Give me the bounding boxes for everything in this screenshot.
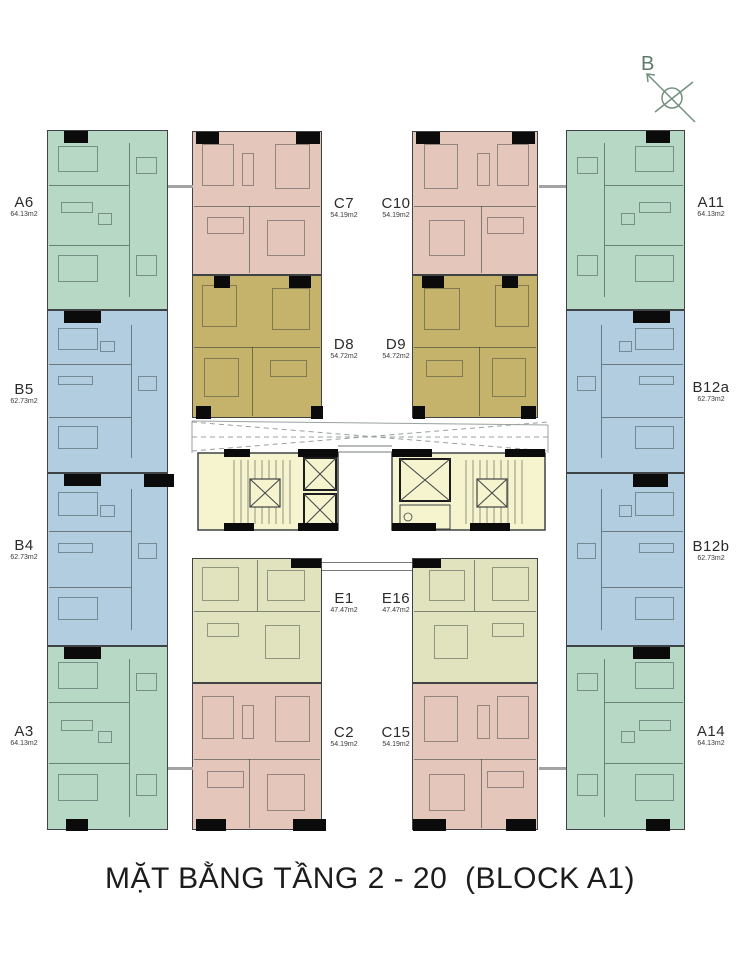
shear-wall bbox=[416, 132, 440, 144]
unit-name: B12b bbox=[688, 539, 734, 554]
unit-E16 bbox=[412, 558, 538, 683]
unit-name: A14 bbox=[688, 724, 734, 739]
unit-name: B12a bbox=[688, 380, 734, 395]
unit-interior bbox=[414, 277, 536, 416]
shear-wall bbox=[196, 132, 219, 144]
unit-name: B5 bbox=[2, 382, 46, 397]
unit-area: 54.19m2 bbox=[324, 211, 364, 220]
unit-label-E1: E147.47m2 bbox=[324, 591, 364, 615]
unit-label-D8: D854.72m2 bbox=[324, 337, 364, 361]
unit-name: E16 bbox=[376, 591, 416, 606]
shear-wall bbox=[422, 276, 444, 288]
unit-area: 47.47m2 bbox=[376, 606, 416, 615]
compass-icon: B bbox=[628, 48, 708, 138]
compass-letter: B bbox=[641, 53, 654, 75]
shear-wall bbox=[633, 311, 670, 323]
unit-area: 54.72m2 bbox=[376, 352, 416, 361]
unit-area: 62.73m2 bbox=[2, 553, 46, 562]
unit-label-C7: C754.19m2 bbox=[324, 196, 364, 220]
unit-A3 bbox=[47, 646, 168, 830]
unit-area: 62.73m2 bbox=[688, 554, 734, 563]
unit-name: C7 bbox=[324, 196, 364, 211]
shear-wall bbox=[506, 819, 536, 831]
shear-wall bbox=[502, 276, 518, 288]
unit-name: A3 bbox=[2, 724, 46, 739]
unit-area: 64.13m2 bbox=[688, 210, 734, 219]
unit-name: A11 bbox=[688, 195, 734, 210]
section-connector-line bbox=[539, 767, 566, 770]
unit-A14 bbox=[566, 646, 685, 830]
unit-C15 bbox=[412, 683, 538, 830]
unit-name: C2 bbox=[324, 725, 364, 740]
corridor-bridge bbox=[322, 562, 412, 571]
unit-name: C15 bbox=[376, 725, 416, 740]
unit-area: 54.19m2 bbox=[376, 211, 416, 220]
unit-name: B4 bbox=[2, 538, 46, 553]
shear-wall bbox=[64, 647, 101, 659]
unit-interior bbox=[49, 312, 166, 471]
unit-A6 bbox=[47, 130, 168, 310]
shear-wall bbox=[64, 311, 101, 323]
unit-label-B12a: B12a62.73m2 bbox=[688, 380, 734, 404]
unit-area: 64.13m2 bbox=[2, 210, 46, 219]
unit-name: E1 bbox=[324, 591, 364, 606]
floor-plan-canvas: B A664.13m2B562.73m2B462.73m2A364.13m2C7… bbox=[0, 0, 740, 960]
unit-area: 62.73m2 bbox=[2, 397, 46, 406]
section-connector-line bbox=[168, 185, 193, 188]
unit-interior bbox=[194, 133, 320, 273]
unit-label-A14: A1464.13m2 bbox=[688, 724, 734, 748]
shear-wall bbox=[633, 647, 670, 659]
shear-wall bbox=[293, 819, 326, 831]
unit-C10 bbox=[412, 131, 538, 275]
unit-label-A11: A1164.13m2 bbox=[688, 195, 734, 219]
shear-wall bbox=[633, 474, 668, 487]
unit-label-A6: A664.13m2 bbox=[2, 195, 46, 219]
unit-area: 62.73m2 bbox=[688, 395, 734, 404]
shear-wall bbox=[296, 132, 320, 144]
unit-E1 bbox=[192, 558, 322, 683]
unit-D9 bbox=[412, 275, 538, 418]
unit-area: 54.19m2 bbox=[324, 740, 364, 749]
shear-wall bbox=[512, 132, 535, 144]
unit-label-C2: C254.19m2 bbox=[324, 725, 364, 749]
shear-wall bbox=[291, 559, 321, 568]
unit-A11 bbox=[566, 130, 685, 310]
shear-wall bbox=[66, 819, 88, 831]
core-stairs-elevators bbox=[188, 414, 550, 538]
unit-label-B5: B562.73m2 bbox=[2, 382, 46, 406]
plan-title: MẶT BẰNG TẦNG 2 - 20 (BLOCK A1) bbox=[0, 862, 740, 896]
unit-D8 bbox=[192, 275, 322, 418]
unit-label-B4: B462.73m2 bbox=[2, 538, 46, 562]
unit-area: 64.13m2 bbox=[2, 739, 46, 748]
unit-interior bbox=[568, 312, 683, 471]
shear-wall bbox=[413, 559, 441, 568]
unit-label-E16: E1647.47m2 bbox=[376, 591, 416, 615]
unit-interior bbox=[49, 648, 166, 828]
unit-name: D9 bbox=[376, 337, 416, 352]
unit-interior bbox=[194, 560, 320, 681]
unit-interior bbox=[568, 475, 683, 644]
shear-wall bbox=[144, 474, 174, 487]
unit-B5 bbox=[47, 310, 168, 473]
unit-label-C10: C1054.19m2 bbox=[376, 196, 416, 220]
shear-wall bbox=[646, 819, 670, 831]
shear-wall bbox=[64, 131, 88, 143]
unit-name: C10 bbox=[376, 196, 416, 211]
unit-area: 54.72m2 bbox=[324, 352, 364, 361]
section-connector-line bbox=[168, 767, 193, 770]
unit-area: 64.13m2 bbox=[688, 739, 734, 748]
shear-wall bbox=[289, 276, 311, 288]
unit-B4 bbox=[47, 473, 168, 646]
shear-wall bbox=[196, 819, 226, 831]
unit-interior bbox=[568, 648, 683, 828]
unit-interior bbox=[414, 133, 536, 273]
unit-C7 bbox=[192, 131, 322, 275]
shear-wall bbox=[214, 276, 230, 288]
unit-interior bbox=[49, 132, 166, 308]
unit-C2 bbox=[192, 683, 322, 830]
unit-interior bbox=[414, 685, 536, 828]
unit-interior bbox=[194, 277, 320, 416]
unit-label-B12b: B12b62.73m2 bbox=[688, 539, 734, 563]
shear-wall bbox=[413, 819, 446, 831]
unit-area: 54.19m2 bbox=[376, 740, 416, 749]
unit-interior bbox=[568, 132, 683, 308]
section-connector-line bbox=[539, 185, 566, 188]
unit-B12b bbox=[566, 473, 685, 646]
unit-label-D9: D954.72m2 bbox=[376, 337, 416, 361]
unit-area: 47.47m2 bbox=[324, 606, 364, 615]
unit-name: D8 bbox=[324, 337, 364, 352]
unit-B12a bbox=[566, 310, 685, 473]
unit-label-A3: A364.13m2 bbox=[2, 724, 46, 748]
unit-interior bbox=[49, 475, 166, 644]
unit-interior bbox=[414, 560, 536, 681]
unit-interior bbox=[194, 685, 320, 828]
shear-wall bbox=[64, 474, 101, 486]
unit-label-C15: C1554.19m2 bbox=[376, 725, 416, 749]
shear-wall bbox=[646, 131, 670, 143]
unit-name: A6 bbox=[2, 195, 46, 210]
